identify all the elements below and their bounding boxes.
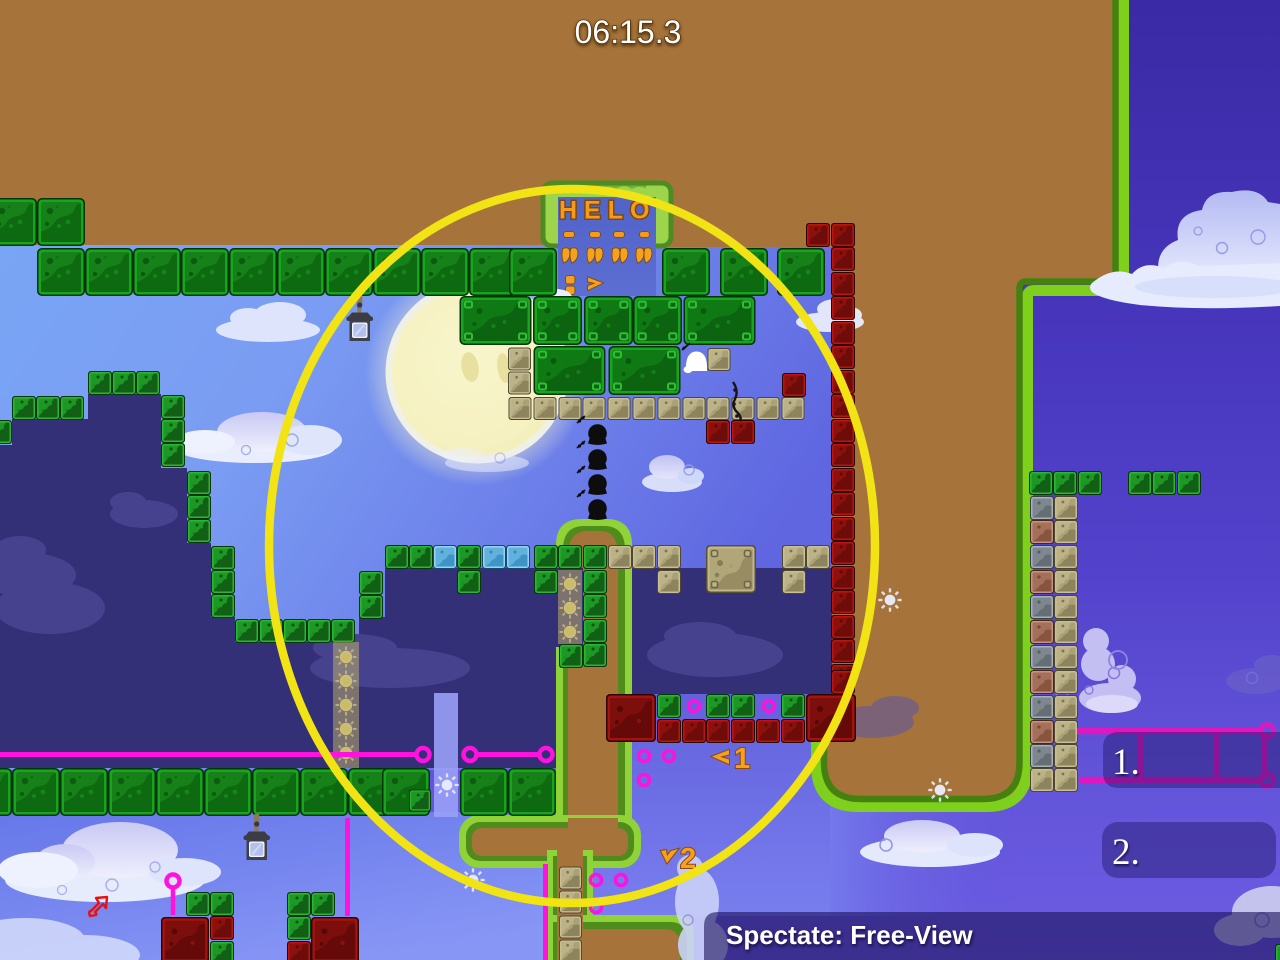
svg-text:2.: 2. bbox=[1112, 832, 1140, 873]
svg-text:06:15.3: 06:15.3 bbox=[575, 14, 682, 50]
svg-text:Spectate: Free-View: Spectate: Free-View bbox=[726, 920, 973, 950]
svg-text:1: 1 bbox=[734, 743, 750, 775]
svg-text:1.: 1. bbox=[1112, 742, 1140, 783]
